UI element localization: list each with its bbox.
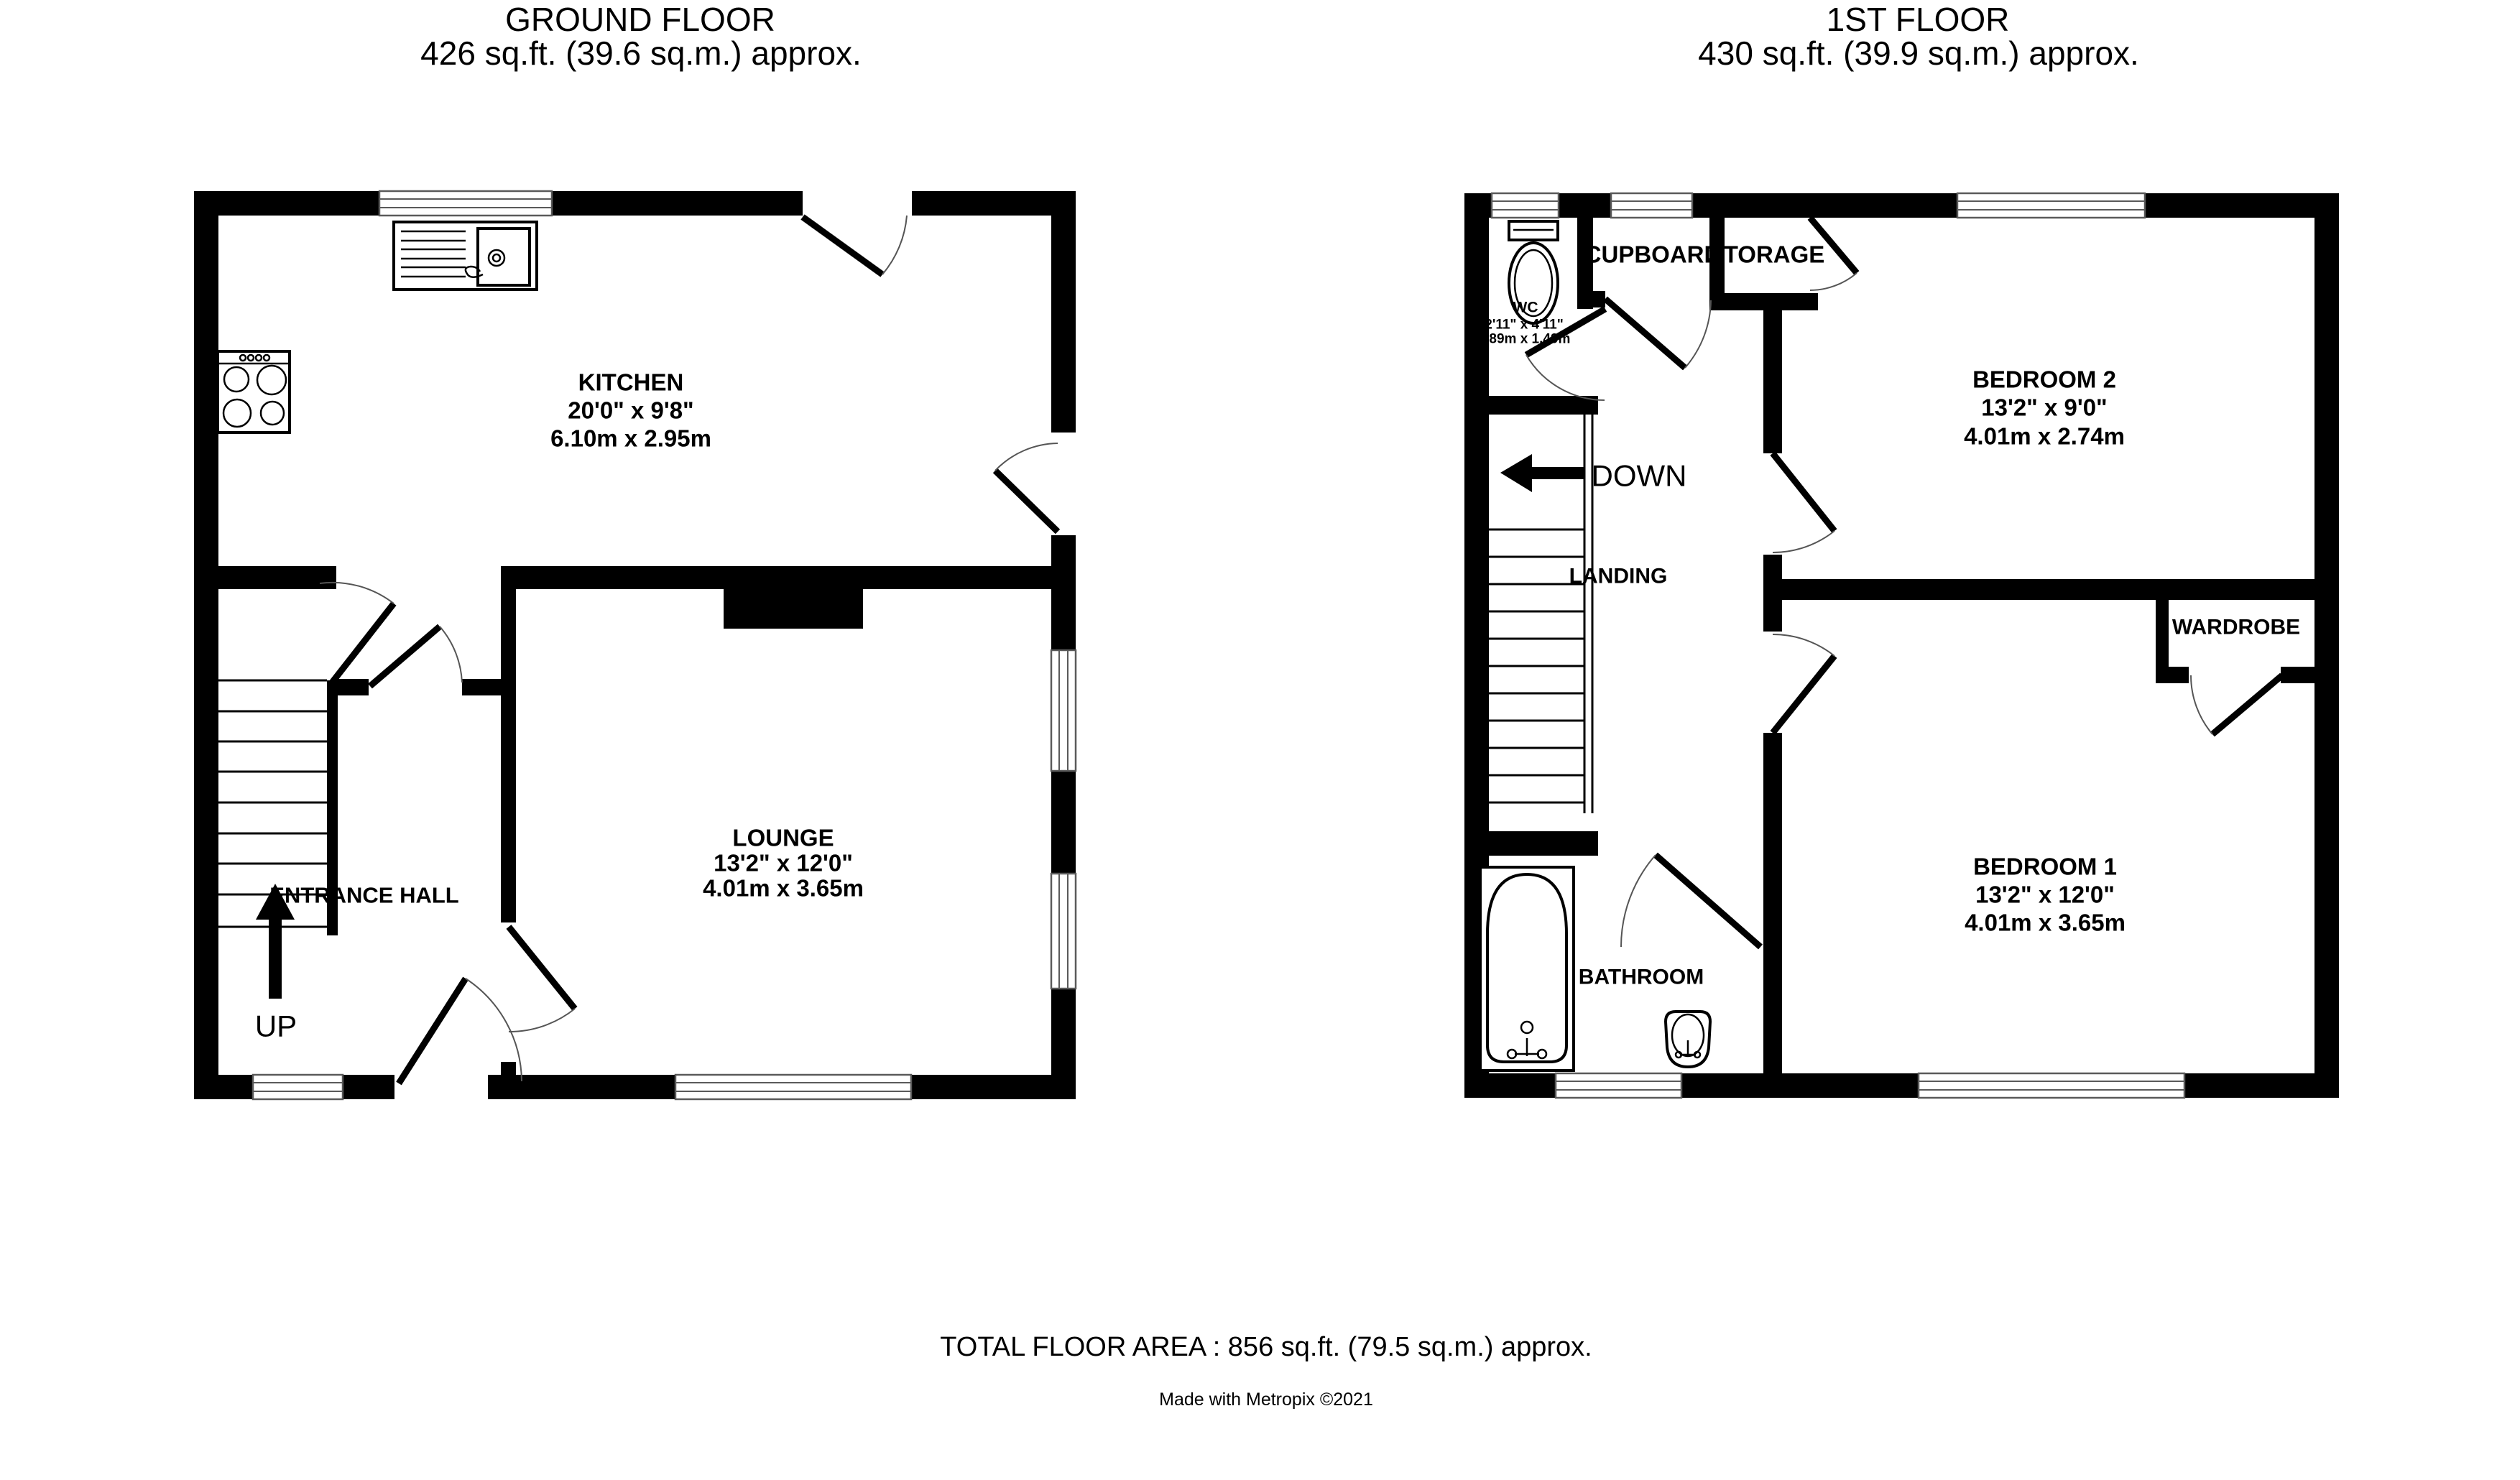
landing-label: LANDING: [1569, 565, 1668, 588]
kitchen-dim-metric: 6.10m x 2.95m: [550, 425, 711, 452]
wc-dim-metric: 0.89m x 1.49m: [1478, 332, 1571, 347]
floorplan-canvas: GROUND FLOOR 426 sq.ft. (39.6 sq.m.) app…: [0, 0, 2520, 1480]
down-arrow-icon: [1500, 454, 1584, 492]
cupboard-label: CUPBOARD: [1584, 241, 1722, 268]
window: [1919, 1073, 2184, 1098]
window: [1051, 650, 1076, 771]
bedroom1-dim-imperial: 13'2" x 12'0": [1975, 882, 2115, 908]
ground-floor-interior-walls: [218, 566, 1051, 1075]
kitchen-sink: [394, 222, 537, 290]
window: [1611, 193, 1692, 218]
bedroom1-dim-metric: 4.01m x 3.65m: [1965, 910, 2126, 936]
first-floor-subtitle: 430 sq.ft. (39.9 sq.m.) approx.: [1698, 34, 2139, 72]
door: [1773, 634, 1834, 733]
ground-floor-title: GROUND FLOOR: [505, 1, 775, 38]
window: [1556, 1073, 1681, 1098]
door: [320, 583, 394, 683]
window: [675, 1075, 911, 1099]
chimney-breast: [724, 589, 863, 629]
door: [1773, 453, 1834, 552]
ground-floor-plan: KITCHEN 20'0" x 9'8" 6.10m x 2.95m LOUNG…: [194, 191, 1076, 1099]
bedroom1-label: BEDROOM 1: [1973, 854, 2117, 880]
first-floor-title: 1ST FLOOR: [1827, 1, 2010, 38]
door: [509, 927, 575, 1032]
wash-basin: [1666, 1012, 1710, 1067]
window: [1492, 193, 1559, 218]
down-label: DOWN: [1592, 459, 1687, 493]
total-floor-area: TOTAL FLOOR AREA : 856 sq.ft. (79.5 sq.m…: [940, 1332, 1592, 1362]
ground-floor-windows: [253, 191, 1076, 1099]
cooker-hob: [218, 351, 290, 433]
bedroom2-dim-imperial: 13'2" x 9'0": [1981, 394, 2107, 421]
door: [1605, 299, 1711, 368]
ground-floor-subtitle: 426 sq.ft. (39.6 sq.m.) approx.: [420, 34, 862, 72]
first-floor-windows: [1492, 193, 2184, 1098]
door: [803, 216, 907, 274]
lounge-dim-metric: 4.01m x 3.65m: [703, 875, 864, 902]
window: [1957, 193, 2145, 218]
door: [1621, 855, 1760, 947]
door: [370, 626, 462, 686]
kitchen-label: KITCHEN: [578, 369, 684, 396]
entrance-hall-label: ENTRANCE HALL: [269, 883, 459, 908]
kitchen-dim-imperial: 20'0" x 9'8": [568, 397, 693, 424]
lounge-label: LOUNGE: [732, 825, 834, 851]
up-label: UP: [255, 1009, 297, 1043]
wc-label: WC: [1513, 300, 1538, 316]
door: [995, 443, 1058, 532]
ground-floor-exterior-walls: [194, 191, 1076, 1099]
bathtub: [1480, 867, 1574, 1070]
first-floor-plan: CUPBOARD STORAGE: [1464, 193, 2339, 1098]
window: [1051, 874, 1076, 989]
storage-label: STORAGE: [1708, 241, 1825, 268]
door: [2191, 675, 2282, 734]
bedroom2-dim-metric: 4.01m x 2.74m: [1964, 423, 2125, 450]
first-floor-exterior-walls: [1464, 193, 2339, 1098]
bathroom-label: BATHROOM: [1579, 966, 1704, 989]
window: [379, 191, 552, 216]
wc-dim-imperial: 2'11" x 4'11": [1485, 318, 1563, 333]
metropix-credit: Made with Metropix ©2021: [1159, 1389, 1373, 1410]
wardrobe-label: WARDROBE: [2172, 616, 2300, 639]
floorplan-page: GROUND FLOOR 426 sq.ft. (39.6 sq.m.) app…: [0, 0, 2520, 1480]
ground-floor-doors: [320, 216, 1058, 1083]
lounge-dim-imperial: 13'2" x 12'0": [714, 850, 853, 877]
bedroom2-label: BEDROOM 2: [1972, 366, 2116, 393]
window: [253, 1075, 343, 1099]
